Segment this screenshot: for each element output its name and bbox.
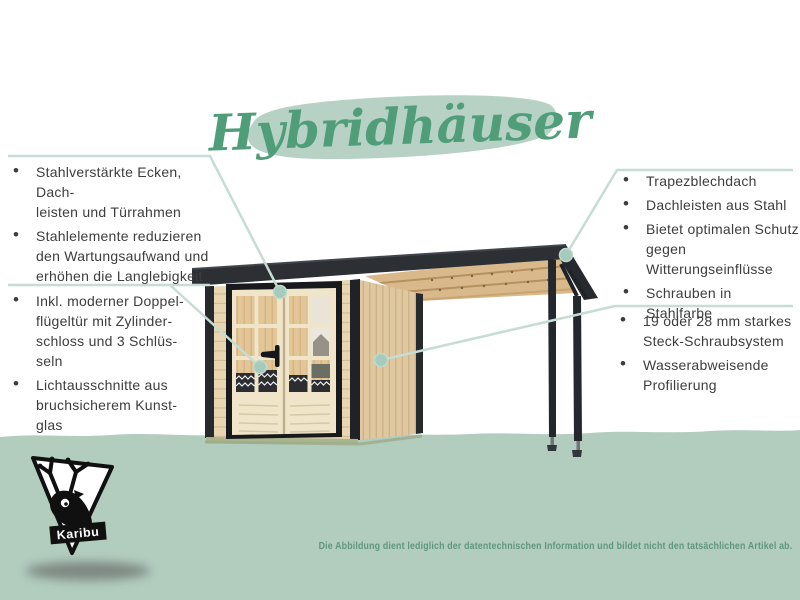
feature-item: Trapezblechdach bbox=[618, 171, 800, 191]
feature-list: 19 oder 28 mm starkes Steck-Schraubsyste… bbox=[615, 311, 800, 395]
feature-item: Stahlelemente reduzieren den Wartungsauf… bbox=[8, 226, 220, 286]
feature-item: Stahlverstärkte Ecken, Dach- leisten und… bbox=[8, 162, 220, 222]
feature-item: Inkl. moderner Doppel- flügeltür mit Zyl… bbox=[8, 291, 213, 371]
shed-illustration bbox=[192, 245, 598, 457]
feature-item: Dachleisten aus Stahl bbox=[618, 195, 800, 215]
cabin-side-wall bbox=[360, 280, 423, 440]
feature-list: Stahlverstärkte Ecken, Dach- leisten und… bbox=[8, 162, 220, 286]
title-group: Hybridhäuser bbox=[206, 90, 597, 164]
feature-panel-door: Inkl. moderner Doppel- flügeltür mit Zyl… bbox=[8, 291, 213, 439]
page-title: Hybridhäuser bbox=[206, 90, 596, 163]
feature-item: Bietet optimalen Schutz gegen Witterungs… bbox=[618, 219, 800, 279]
footer-disclaimer: Die Abbildung dient lediglich der datent… bbox=[318, 541, 792, 552]
logo-shadow bbox=[26, 562, 150, 580]
feature-list: Inkl. moderner Doppel- flügeltür mit Zyl… bbox=[8, 291, 213, 435]
feature-list: Trapezblechdach Dachleisten aus Stahl Bi… bbox=[618, 171, 800, 323]
feature-item: 19 oder 28 mm starkes Steck-Schraubsyste… bbox=[615, 311, 800, 351]
dot-door-glass bbox=[254, 361, 267, 374]
feature-item: Lichtausschnitte aus bruchsicherem Kunst… bbox=[8, 375, 213, 435]
infographic-canvas: Hybridhäuser bbox=[0, 0, 800, 600]
double-door bbox=[226, 281, 342, 439]
dot-door-frame bbox=[274, 286, 287, 299]
dot-roof-corner bbox=[560, 249, 573, 262]
feature-panel-roof: Trapezblechdach Dachleisten aus Stahl Bi… bbox=[618, 171, 800, 327]
dot-side-wall bbox=[375, 354, 388, 367]
feature-panel-steel: Stahlverstärkte Ecken, Dach- leisten und… bbox=[8, 162, 220, 290]
feature-item: Wasserabweisende Profilierung bbox=[615, 355, 800, 395]
feature-panel-walls: 19 oder 28 mm starkes Steck-Schraubsyste… bbox=[615, 311, 800, 399]
